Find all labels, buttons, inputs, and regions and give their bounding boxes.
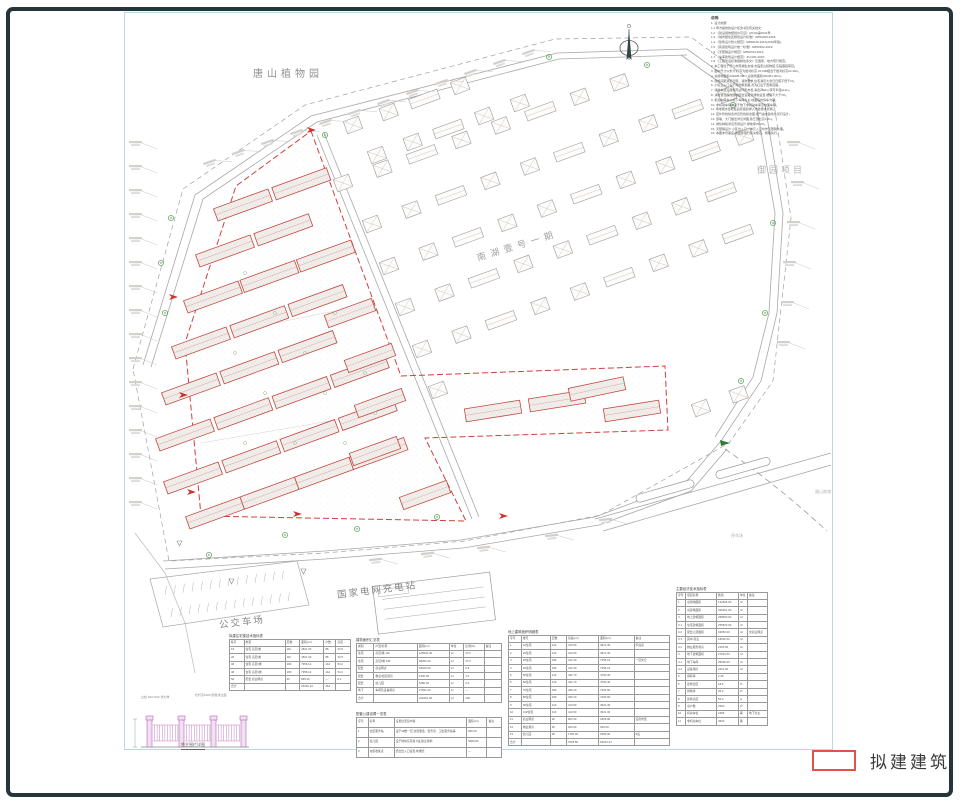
table-cell: 4: [677, 651, 686, 658]
table-cell: [484, 680, 501, 687]
table-cell: [747, 659, 767, 666]
table-cell: 层数: [550, 635, 566, 642]
table-cell: m²: [449, 673, 464, 680]
building-existing: [452, 227, 484, 247]
table-cell: 类型: [244, 639, 285, 646]
building-existing: [722, 224, 754, 244]
table-cell: 备注: [634, 635, 669, 642]
table-cell: [747, 681, 767, 688]
tree-icon: [282, 532, 287, 537]
table-cell: 24620.24: [300, 683, 324, 690]
table-cell: %: [738, 688, 747, 695]
table-cell: 3.4: [677, 644, 686, 651]
table-cell: 项目名称: [686, 592, 717, 599]
table-cell: 幼儿园: [521, 731, 550, 738]
table-cell: 户数: [324, 639, 336, 646]
table-cell: [550, 738, 566, 745]
building-existing: [570, 283, 589, 301]
table-cell: 幼儿园: [374, 680, 418, 687]
dimension-callout: [129, 285, 157, 293]
dimension-callout: [783, 261, 811, 269]
table-cell: 5280.00: [467, 737, 487, 747]
table-cell: 总建筑面积: [686, 607, 717, 614]
table-cell: [747, 599, 767, 606]
fence-note-left: 立柱 600×600 详大样: [141, 695, 169, 699]
table-cell: 7: [509, 687, 522, 694]
table-cell: 11F: [550, 679, 566, 686]
north-arrow-icon: [620, 24, 638, 60]
table-cell: 98350.20: [417, 658, 449, 665]
table-cell: [747, 607, 767, 614]
building-existing: [570, 88, 589, 106]
table-cell: 地下: [357, 687, 374, 694]
table-cell: 32650.00: [717, 629, 739, 636]
table-cell: [484, 658, 501, 665]
entrance-marker-icon: [187, 489, 196, 495]
dimension-callout: [129, 309, 157, 317]
dimension-callout: [129, 453, 157, 461]
table-cell: [374, 695, 418, 702]
table-cell: 住宅: [357, 658, 374, 665]
table-cell: 7356.12: [599, 665, 634, 672]
table-cell: 9#住宅: [521, 702, 550, 709]
table-cell: 2.0: [464, 680, 484, 687]
table-cell: 7293.60: [599, 687, 634, 694]
screenshot-canvas: 唐山植物园 御园项目 南湖壹号一期 国家电网充电站 公交车场 唐山南湖 停车场 …: [0, 0, 965, 808]
table-cell: 520.00: [599, 724, 634, 731]
tree-icon: [206, 552, 211, 557]
label-yuyuan-project: 御园项目: [757, 163, 805, 176]
fence-detail-caption: 铁艺围栏详图: [181, 742, 205, 750]
table-cell: 4521.30: [300, 654, 324, 661]
table-cell: [484, 695, 501, 702]
drawing-sheet: 唐山植物园 御园项目 南湖壹号一期 国家电网充电站 公交车场 唐山南湖 停车场 …: [124, 12, 833, 750]
table-cell: 18F: [285, 661, 300, 668]
building-existing: [672, 99, 704, 119]
dimension-callout: [787, 221, 815, 229]
table-cell: 地下车库: [686, 659, 717, 666]
table-cell: 7: [677, 688, 686, 695]
table-cell: 9: [509, 702, 522, 709]
table-cell: 903.40: [566, 716, 598, 723]
table-cell: [747, 636, 767, 643]
building-existing: [333, 174, 352, 192]
building-existing: [691, 399, 710, 417]
table-cell: 基底(m²): [566, 635, 598, 642]
tree-icon: [322, 132, 327, 137]
table-cell: m²: [449, 680, 464, 687]
table-cell: 辆: [738, 710, 747, 717]
building-existing: [510, 94, 529, 112]
table-cell: 11F: [550, 672, 566, 679]
table-cell: 设置位置及内容: [394, 717, 467, 727]
table-cell: 楼号: [521, 635, 550, 642]
table-cell: —: [467, 747, 487, 757]
building-existing: [435, 185, 467, 205]
building-existing: [632, 212, 651, 230]
building-existing: [553, 142, 585, 162]
table-cell: m: [738, 695, 747, 702]
table-cell: 2.25: [717, 673, 739, 680]
table-cell: 464: [324, 683, 336, 690]
table-cell: [487, 737, 502, 747]
dimension-callout: [129, 213, 157, 221]
table-cell: 比例(%): [464, 643, 484, 650]
table-cell: [747, 695, 767, 702]
table-cell: m²: [738, 614, 747, 621]
table-cell: [634, 724, 669, 731]
tree-icon: [770, 220, 775, 225]
table-cell: 住宅 高层Ⅰ类: [244, 646, 285, 653]
dimension-callout: [129, 429, 157, 437]
table-cell: 2F: [550, 716, 566, 723]
table-cell: 11F: [550, 642, 566, 649]
table-cell: 6#住宅: [521, 679, 550, 686]
table-cell: m²: [738, 599, 747, 606]
table-cell: 商业网点: [521, 716, 550, 723]
table-cell: 容积率: [686, 673, 717, 680]
table-cell: [747, 651, 767, 658]
building-existing: [452, 326, 471, 344]
table-area-summary: 建筑面积汇总表类别户型/名称面积(m²)单位比例(%)备注住宅高层Ⅰ类 11F1…: [356, 637, 502, 703]
label-botanical-garden: 唐山植物园: [253, 65, 323, 80]
tree-icon: [158, 260, 163, 265]
table-cell: 35.2: [717, 688, 739, 695]
table-cell: [336, 683, 351, 690]
table-cell: 3F: [550, 731, 566, 738]
table-cell: 配套: [357, 673, 374, 680]
table-cell: 设于地块东南角,9班,独立用地: [394, 737, 467, 747]
table-cell: 27931.00: [417, 687, 449, 694]
table-cell: 4521.30: [599, 702, 634, 709]
table-cell: [244, 683, 285, 690]
table-cell: 7356.12: [300, 661, 324, 668]
table-cell: 326451.00: [717, 607, 739, 614]
table-cell: 幼儿园: [368, 737, 394, 747]
table-cell: 2F: [285, 676, 300, 683]
table-cell: 860.00: [467, 727, 487, 737]
table-cell: 410.50: [566, 650, 598, 657]
table-cell: 建筑密度: [686, 681, 717, 688]
table-cell: m²: [738, 666, 747, 673]
table-cell: 144: [324, 661, 336, 668]
table-cell: 2331.00: [717, 666, 739, 673]
dimension-callout: [464, 64, 493, 81]
table-cell: [634, 709, 669, 716]
label-parking-area: 停车场: [731, 533, 743, 539]
table-cell: [634, 687, 669, 694]
table-cell: [487, 727, 502, 737]
table-cell: 2150.00: [717, 644, 739, 651]
table-cell: [484, 687, 501, 694]
dimension-callout: [129, 477, 157, 485]
table-cell: 6.8: [464, 665, 484, 672]
table-cell: 5280.00: [417, 680, 449, 687]
table-cell: 18F: [285, 669, 300, 676]
table-cell: 2F: [550, 724, 566, 731]
building-existing: [452, 131, 471, 149]
table-cell: 47.6: [464, 650, 484, 657]
table-cell: 13: [509, 731, 522, 738]
table-cell: 7#住宅: [521, 687, 550, 694]
table-cell: 865.40: [300, 676, 324, 683]
table-cell: 住宅 高层Ⅱ类: [244, 669, 285, 676]
label-tangshan-nanhu: 唐山南湖: [815, 489, 831, 495]
table-cell: 412.30: [566, 657, 598, 664]
table-cell: 432.70: [566, 672, 598, 679]
dimension-callout: [369, 556, 398, 567]
table-cell: 沿街布置: [634, 716, 669, 723]
building-existing: [514, 255, 533, 273]
building-existing: [639, 115, 658, 133]
table-cell: 3: [677, 614, 686, 621]
table-cell: 其中:商业: [686, 636, 717, 643]
table-cell: 1: [357, 727, 369, 737]
table-cell: 4521.30: [599, 650, 634, 657]
table-cell: 27931.00: [717, 651, 739, 658]
table-cell: 265870.00: [717, 622, 739, 629]
table-cell: 住宅: [357, 650, 374, 657]
table-cell: 3#住宅: [521, 657, 550, 664]
table-cell: 设备用房: [686, 666, 717, 673]
dimension-callout: [777, 341, 805, 349]
table-cell: 总户数: [686, 703, 717, 710]
fence-note-right: 栏杆高1800 颜色详立面: [195, 693, 227, 697]
dimension-callout: [129, 189, 157, 197]
table-cell: 地上建筑面积: [686, 614, 717, 621]
dimension-callout: [129, 237, 157, 245]
table-title: 拟建住宅楼技术指标表: [229, 633, 351, 638]
dimension-callout: [203, 154, 232, 171]
table-cell: 37.0: [464, 658, 484, 665]
table-cell: 非机动车位: [686, 718, 717, 725]
table-cell: 4.1: [677, 659, 686, 666]
table-cell: 车库及设备用房: [374, 687, 418, 694]
table-cell: 4521.30: [599, 709, 634, 716]
table-cell: 3: [509, 657, 522, 664]
building-existing: [616, 171, 635, 189]
table-cell: 410.50: [566, 642, 598, 649]
table-cell: 1: [509, 642, 522, 649]
table-cell: 326451.00: [417, 695, 449, 702]
table-cell: —: [464, 687, 484, 694]
table-cell: [484, 673, 501, 680]
table-cell: 序号: [677, 592, 686, 599]
table-cell: 序号: [357, 717, 369, 727]
table-cell: 5: [677, 673, 686, 680]
table-cell: 4150.00: [417, 673, 449, 680]
table-cell: 11F: [550, 709, 566, 716]
table-cell: 1760.00: [566, 731, 598, 738]
table-cell: 9: [677, 703, 686, 710]
table-cell: 住宅 高层Ⅰ类: [244, 654, 285, 661]
table-cell: [521, 738, 550, 745]
table-cell: [634, 672, 669, 679]
table-cell: 社区服务站: [368, 727, 394, 737]
building-existing: [379, 257, 398, 275]
boundary-dashed-curve: [725, 449, 827, 531]
table-cell: 3: [357, 747, 369, 757]
table-cell: 序号: [509, 635, 522, 642]
proposed-building-swatch: [812, 750, 856, 771]
building-existing: [498, 214, 517, 232]
building-existing: [729, 385, 748, 403]
table-cell: 54.2: [336, 661, 351, 668]
table-cell: m²: [449, 687, 464, 694]
table-cell: 405.20: [566, 687, 598, 694]
table-cell: 面积(m²): [599, 635, 634, 642]
table-cell: 面积(m²): [467, 717, 487, 727]
dimension-callout: [129, 261, 157, 269]
building-existing: [402, 201, 421, 219]
table-cell: 18F: [550, 657, 566, 664]
table-cell: 11F: [550, 702, 566, 709]
dimension-callout: [129, 165, 157, 173]
table-cell: 类别: [357, 643, 374, 650]
table-cell: 2#住宅: [521, 650, 550, 657]
table-cell: 面积(m²): [300, 639, 324, 646]
table-cell: 3#: [230, 661, 245, 668]
table-cell: 4760.40: [599, 679, 634, 686]
table-cell: [634, 679, 669, 686]
table-cell: [634, 650, 669, 657]
building-existing: [610, 74, 629, 92]
dimension-callout: [129, 381, 157, 389]
building-existing: [520, 158, 539, 176]
building-existing: [603, 267, 635, 287]
table-cell: [634, 665, 669, 672]
building-existing: [485, 310, 517, 330]
table-cell: 260.00: [566, 724, 598, 731]
table-cell: 11: [509, 716, 522, 723]
table-cell: 144: [324, 669, 336, 676]
building-existing: [343, 116, 362, 134]
building-existing: [412, 340, 431, 358]
table-cell: 432.70: [566, 679, 598, 686]
table-cell: 18F: [550, 665, 566, 672]
table-cell: 64512.24: [599, 738, 634, 745]
table-cell: 5#住宅: [521, 672, 550, 679]
table-cell: m²: [449, 658, 464, 665]
table-cell: [738, 673, 747, 680]
table-cell: 绿地率: [686, 688, 717, 695]
dimension-callout: [129, 405, 157, 413]
table-cell: m²: [738, 636, 747, 643]
building-existing: [672, 198, 691, 216]
table-cell: [747, 622, 767, 629]
table-cell: 4521.30: [300, 646, 324, 653]
table-cell: 11F: [285, 646, 300, 653]
building-existing: [362, 215, 381, 233]
table-cell: 8.1: [336, 676, 351, 683]
table-cell: 合计: [509, 738, 522, 745]
building-existing: [481, 172, 500, 190]
table-cell: 商业网点: [374, 665, 418, 672]
table-cell: 7356.12: [599, 657, 634, 664]
table-cell: 6: [509, 679, 522, 686]
table-cell: 一层架空: [634, 657, 669, 664]
table-cell: 物业用房: [521, 724, 550, 731]
building-existing: [689, 141, 721, 161]
table-cell: 2486: [717, 710, 739, 717]
table-cell: 7293.60: [599, 694, 634, 701]
table-cell: 10#住宅: [521, 709, 550, 716]
table-cell: 18.6: [717, 681, 739, 688]
table-cell: 地下为主: [747, 710, 767, 717]
table-cell: [634, 738, 669, 745]
table-cell: 建筑高度: [686, 695, 717, 702]
tree-icon: [162, 310, 167, 315]
table-cell: m²: [449, 650, 464, 657]
table-cell: 33.5: [336, 646, 351, 653]
table-cell: 10: [509, 709, 522, 716]
table-cell: 结合出入口设置,地埋式: [394, 747, 467, 757]
building-existing: [468, 268, 500, 288]
table-title: 建筑面积汇总表: [356, 637, 502, 642]
table-cell: [747, 644, 767, 651]
legend: 拟建建筑: [812, 748, 950, 773]
dimension-callout: [129, 141, 157, 149]
table-cell: 25600.00: [717, 659, 739, 666]
table-cell: 高层Ⅱ类 18F: [374, 658, 418, 665]
table-cell: 配套公建面积: [686, 629, 717, 636]
building-existing: [524, 101, 556, 121]
table-cell: m²: [738, 659, 747, 666]
table-cell: 10: [677, 710, 686, 717]
entrance-marker-icon: [499, 513, 508, 519]
building-existing: [656, 157, 675, 175]
building-existing: [570, 184, 602, 204]
table-cell: 18F: [550, 687, 566, 694]
table-cell: 7356.12: [300, 669, 324, 676]
table-cell: —: [324, 676, 336, 683]
table-cell: [484, 665, 501, 672]
table-cell: 高层Ⅰ类 11F: [374, 650, 418, 657]
legend-proposed-building-label: 拟建建筑: [870, 748, 950, 773]
building-existing: [537, 200, 556, 218]
table-cell: 100: [464, 695, 484, 702]
table-cell: 6: [677, 681, 686, 688]
table-cell: m²: [449, 695, 464, 702]
table-cell: 含商业网点: [747, 629, 767, 636]
table-cell: [487, 747, 502, 757]
building-existing: [403, 133, 422, 151]
table-cell: 备注: [747, 592, 767, 599]
table-cell: 4760.40: [599, 672, 634, 679]
table-cell: 11: [677, 718, 686, 725]
table-cell: 配套: [357, 680, 374, 687]
table-cell: 5: [509, 672, 522, 679]
table-cell: 1.6: [464, 673, 484, 680]
table-cell: 数值: [717, 592, 739, 599]
table-cell: 1806.80: [599, 716, 634, 723]
table-cell: [634, 702, 669, 709]
table-area-detail: 地上建筑面积明细表序号楼号层数基底(m²)面积(m²)备注11#住宅11F410…: [508, 629, 670, 746]
table-cell: 1#: [230, 646, 245, 653]
table-cell: [747, 718, 767, 725]
table-cell: 132606.00: [717, 599, 739, 606]
building-existing: [649, 254, 668, 272]
table-cell: 8: [509, 694, 522, 701]
table-cell: 总用地面积: [686, 599, 717, 606]
road-median-capsules: [635, 456, 771, 503]
building-existing: [586, 225, 618, 245]
table-cell: 合计: [230, 683, 245, 690]
table-cell: 3.1: [677, 622, 686, 629]
table-cell: 126520.40: [417, 650, 449, 657]
table-title: 配套公建设置一览表: [356, 711, 502, 716]
table-cell: 住宅建筑面积: [686, 622, 717, 629]
